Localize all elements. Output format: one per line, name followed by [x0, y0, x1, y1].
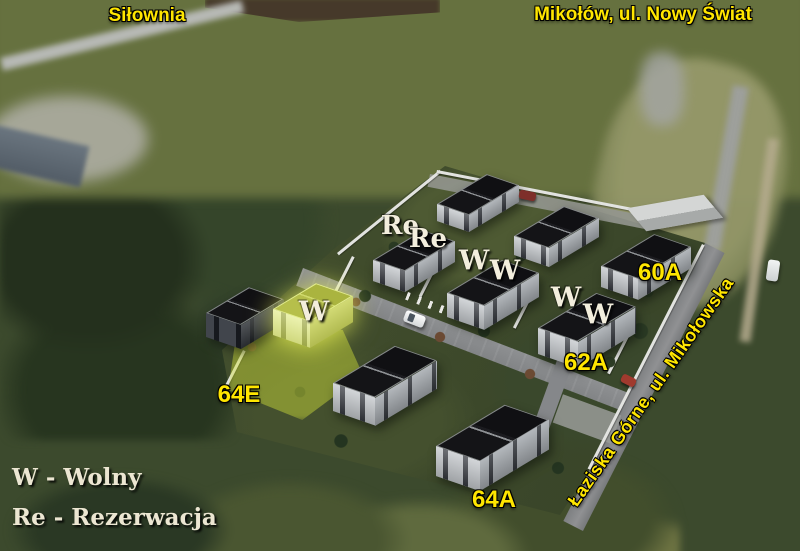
white-van — [766, 259, 781, 281]
label-nowy-swiat: Mikołów, ul. Nowy Świat — [534, 4, 752, 26]
status-w-1[interactable]: W — [459, 246, 489, 277]
status-w-highlighted[interactable]: W — [299, 297, 329, 328]
status-w-2[interactable]: W — [490, 256, 520, 287]
plot-label-64e: 64E — [218, 381, 261, 409]
plot-label-60a: 60A — [638, 259, 682, 287]
plot-label-62a: 62A — [564, 349, 608, 377]
road-junction — [640, 52, 684, 126]
status-w-4[interactable]: W — [583, 300, 613, 331]
plot-label-64a: 64A — [472, 486, 516, 514]
status-w-3[interactable]: W — [551, 283, 581, 314]
legend-reserved: Re - Rezerwacja — [12, 504, 217, 531]
status-re-2[interactable]: Re — [409, 224, 447, 254]
legend-free: W - Wolny — [12, 464, 142, 491]
label-silownia: Siłownia — [108, 5, 185, 27]
estate-aerial-plan: Siłownia Mikołów, ul. Nowy Świat Łaziska… — [0, 0, 800, 551]
